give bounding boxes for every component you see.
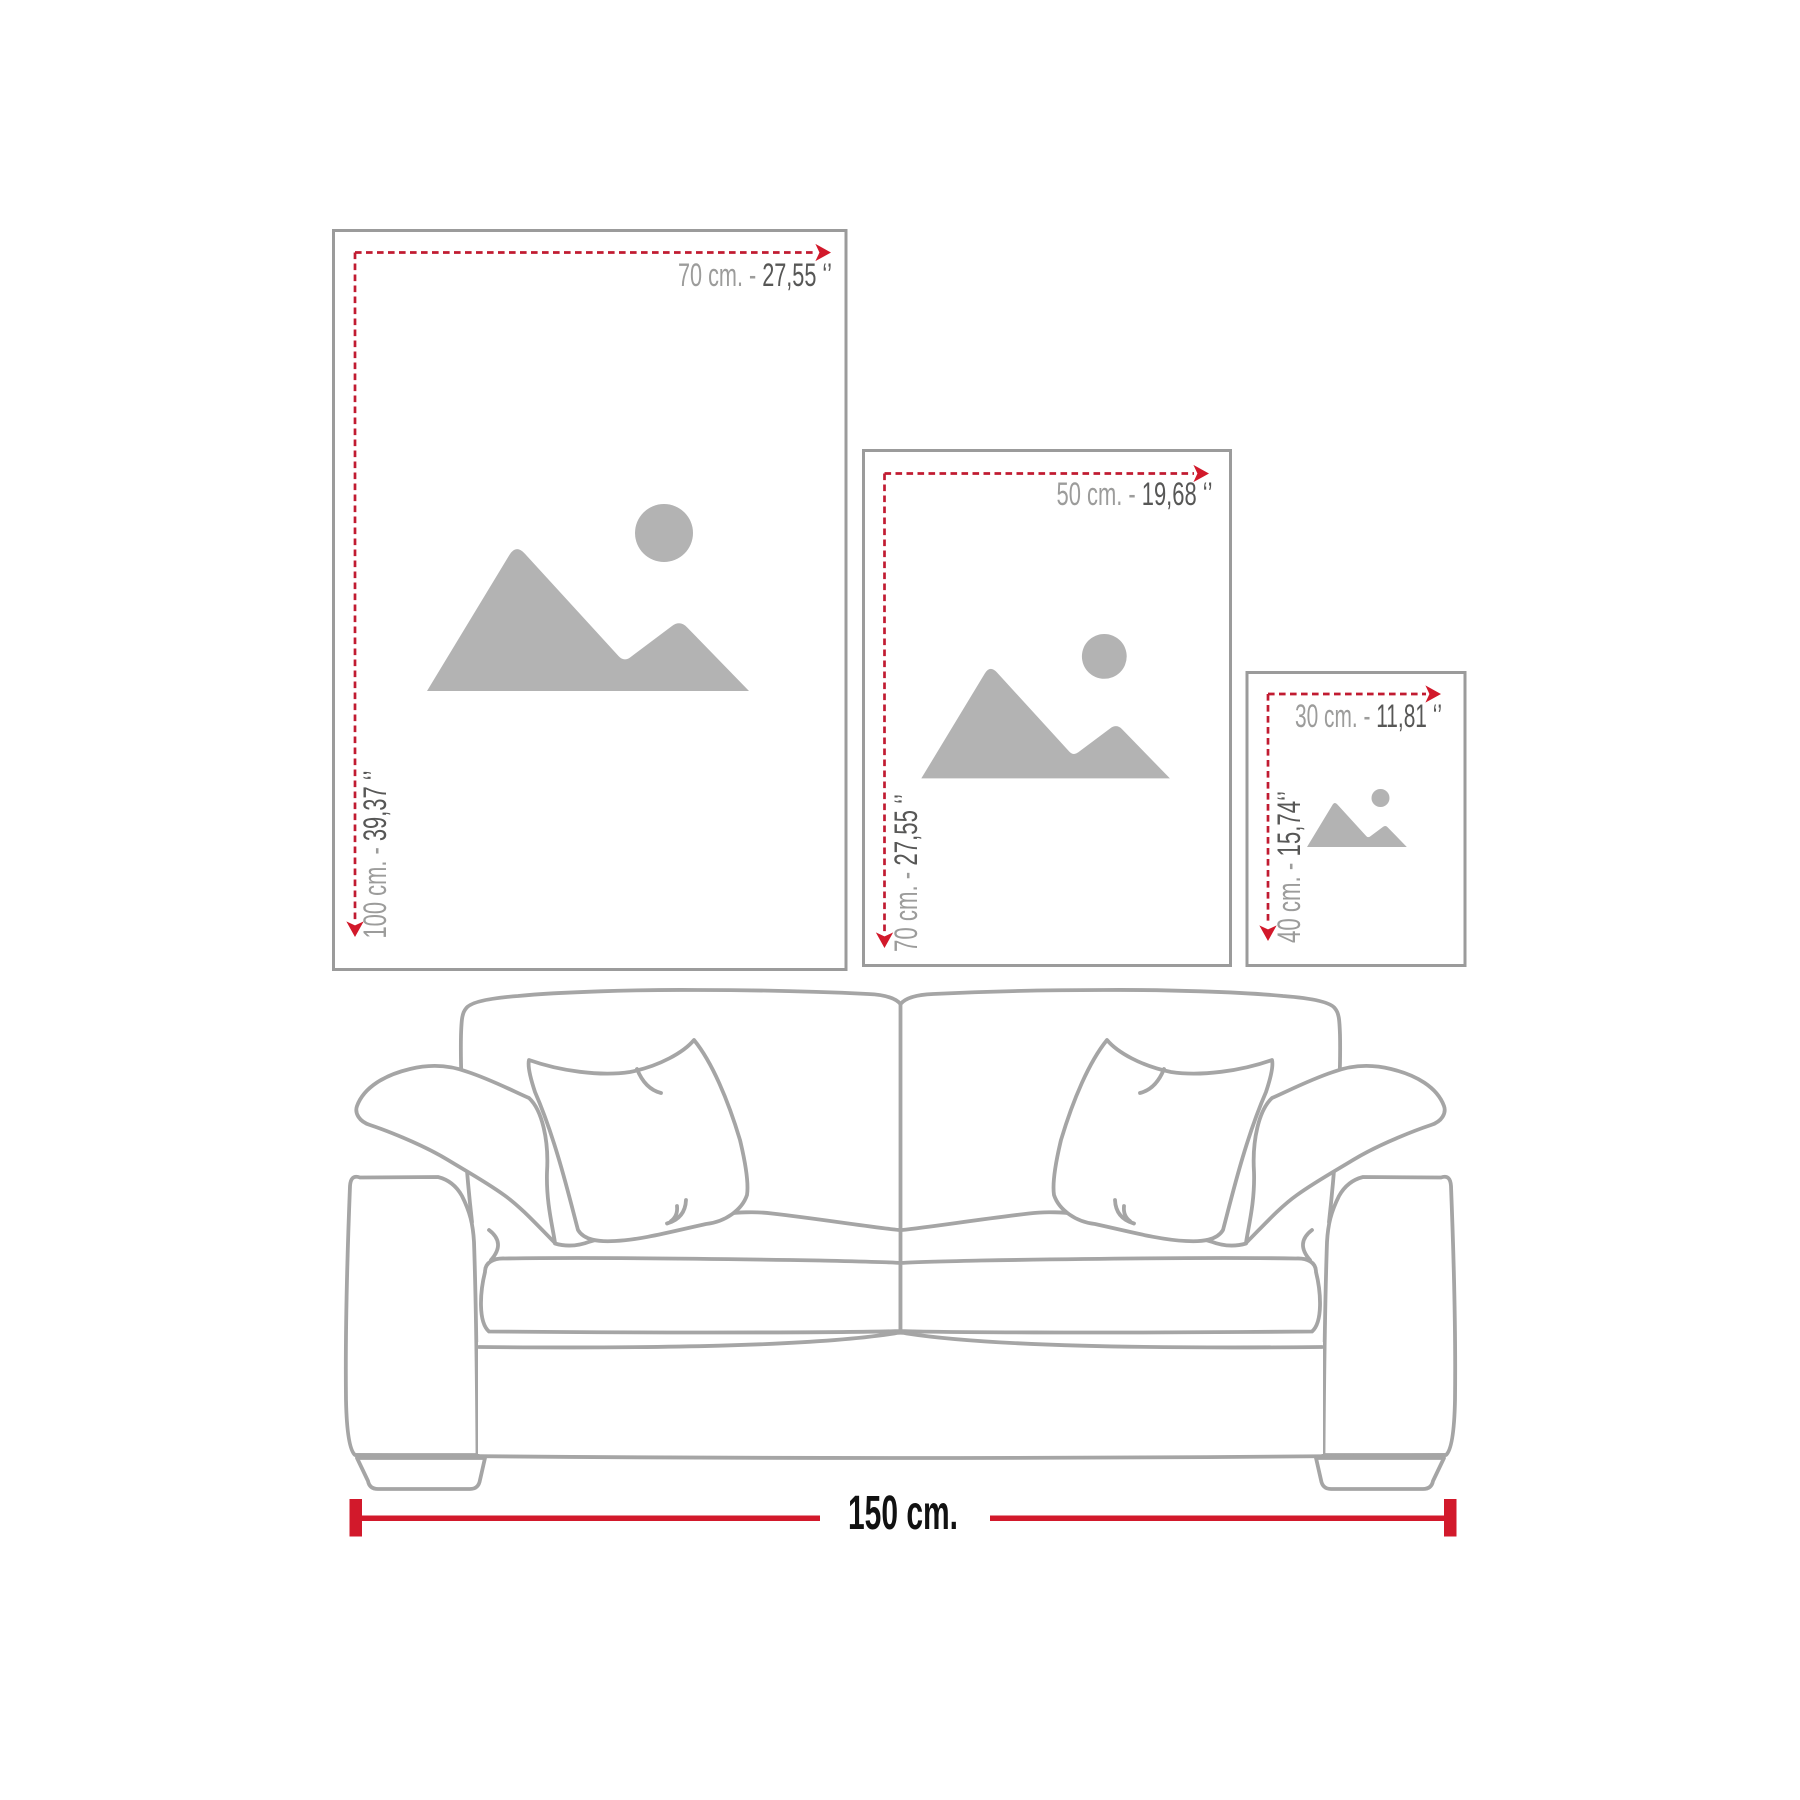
svg-text:70 cm. - 27,55 ‘’: 70 cm. - 27,55 ‘’ <box>678 257 832 293</box>
svg-text:50 cm. - 19,68 ‘’: 50 cm. - 19,68 ‘’ <box>1057 476 1213 512</box>
svg-text:100 cm. - 39,37 ‘’: 100 cm. - 39,37 ‘’ <box>357 771 393 939</box>
svg-text:70 cm. - 27,55 ‘’: 70 cm. - 27,55 ‘’ <box>888 794 924 952</box>
svg-text:40 cm. - 15,74‘’: 40 cm. - 15,74‘’ <box>1271 791 1307 943</box>
svg-text:150 cm.: 150 cm. <box>848 1487 958 1540</box>
svg-text:30 cm. - 11,81 ‘’: 30 cm. - 11,81 ‘’ <box>1295 698 1442 734</box>
